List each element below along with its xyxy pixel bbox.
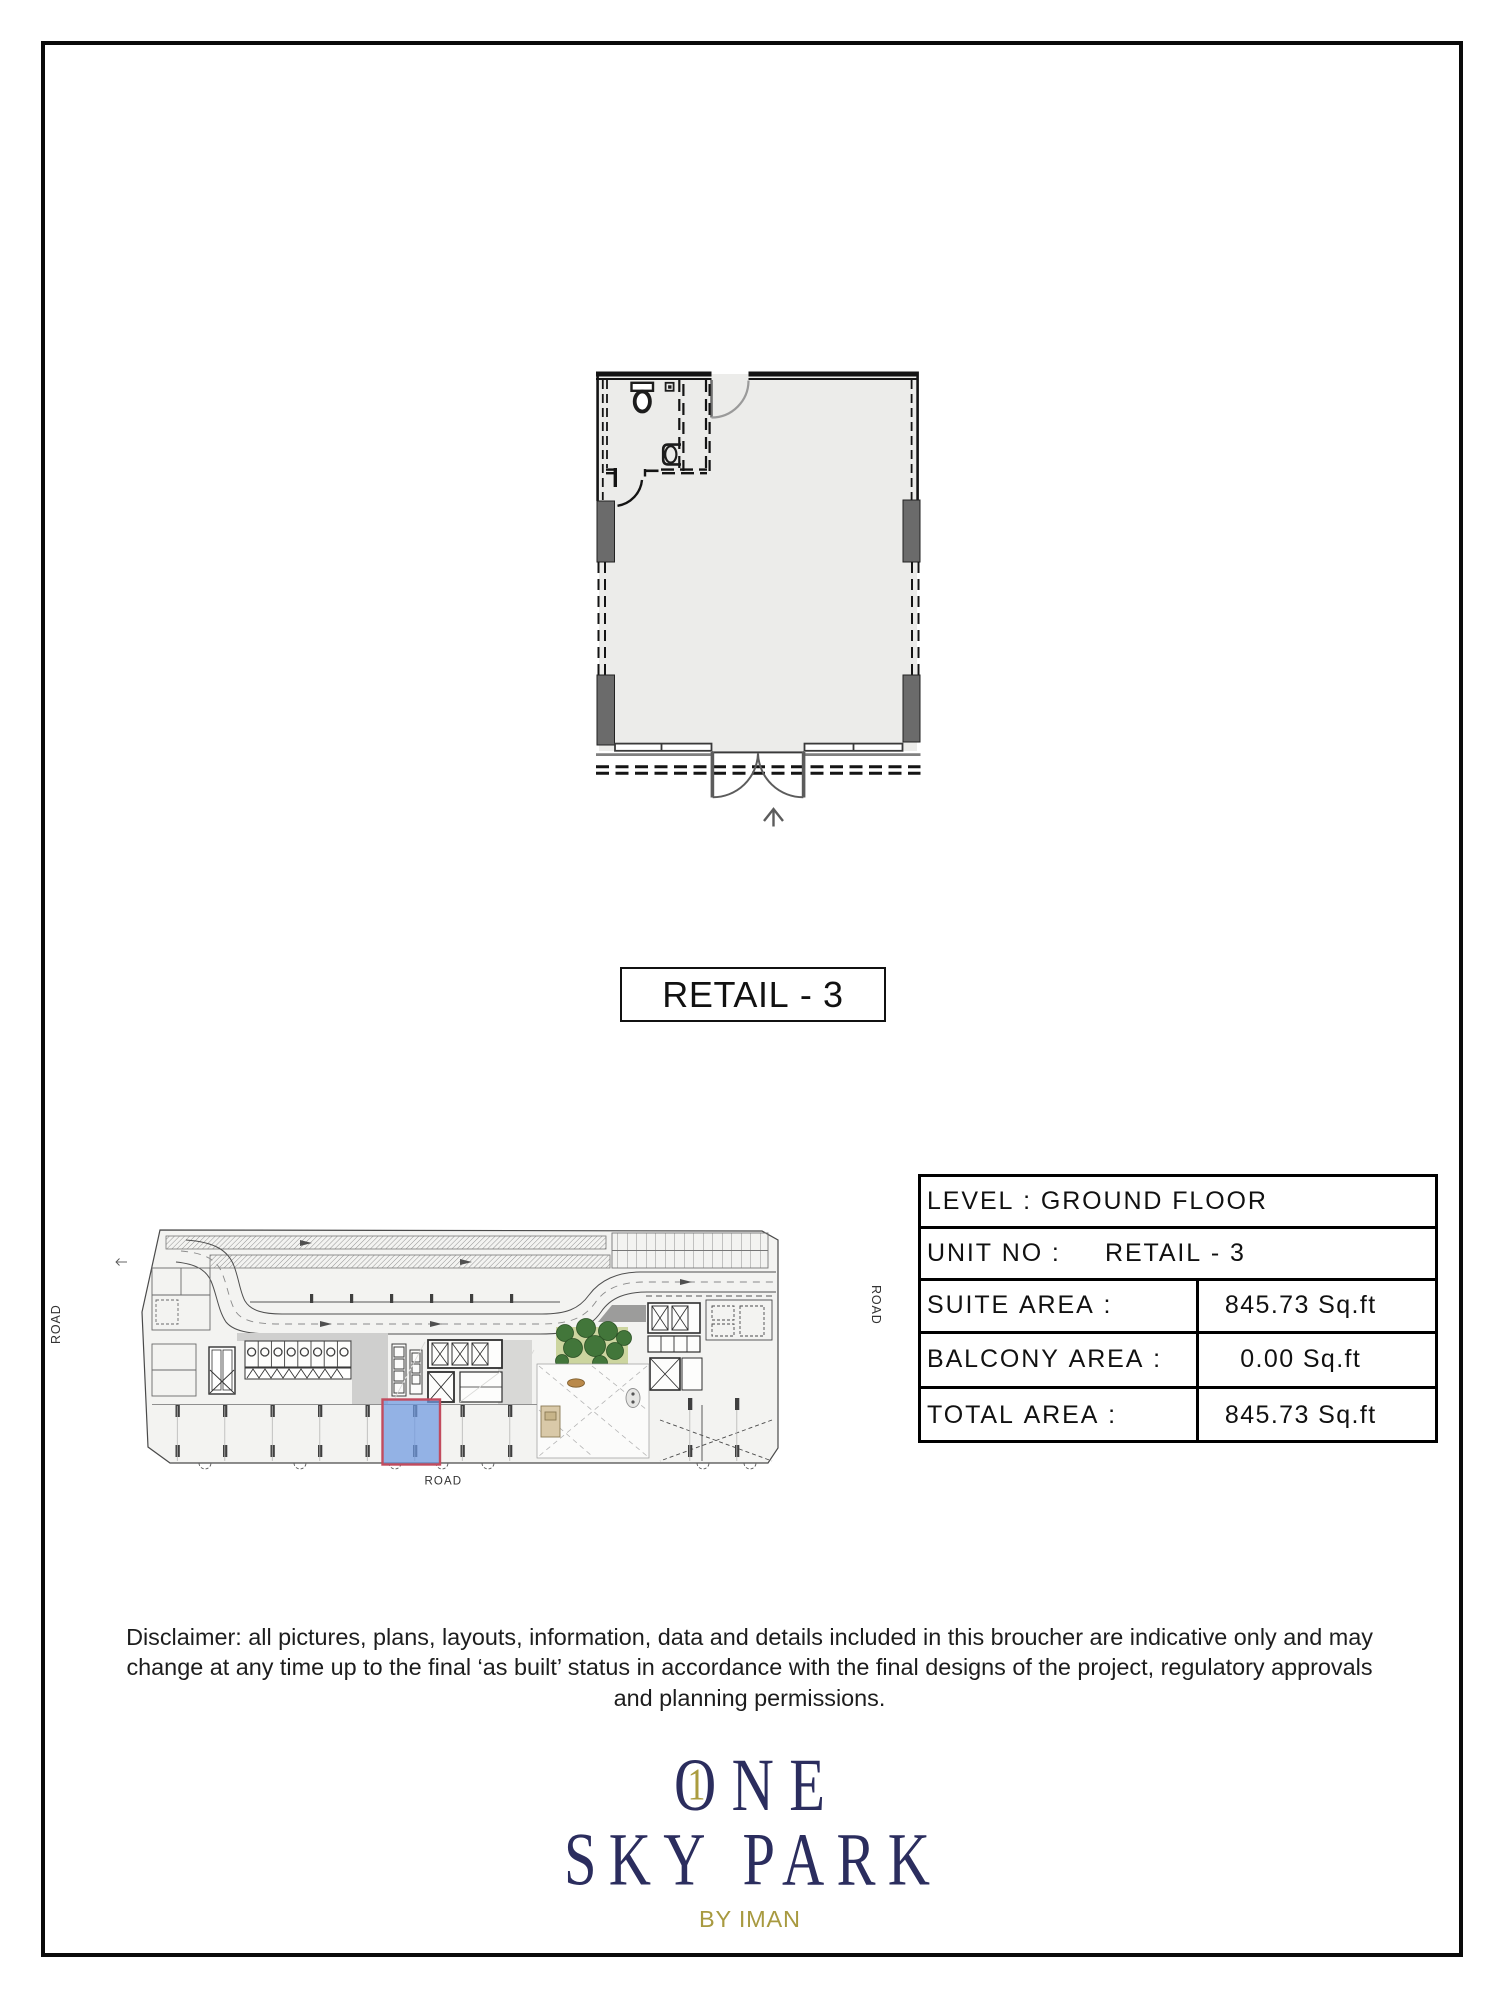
svg-text:SKY PARK: SKY PARK	[564, 1818, 930, 1902]
svg-text:ROAD: ROAD	[49, 1304, 63, 1344]
svg-text:BY IMAN: BY IMAN	[699, 1906, 801, 1932]
svg-text:1: 1	[687, 1758, 705, 1809]
svg-text:ROAD: ROAD	[869, 1285, 883, 1325]
svg-text:ROAD: ROAD	[425, 1476, 463, 1488]
